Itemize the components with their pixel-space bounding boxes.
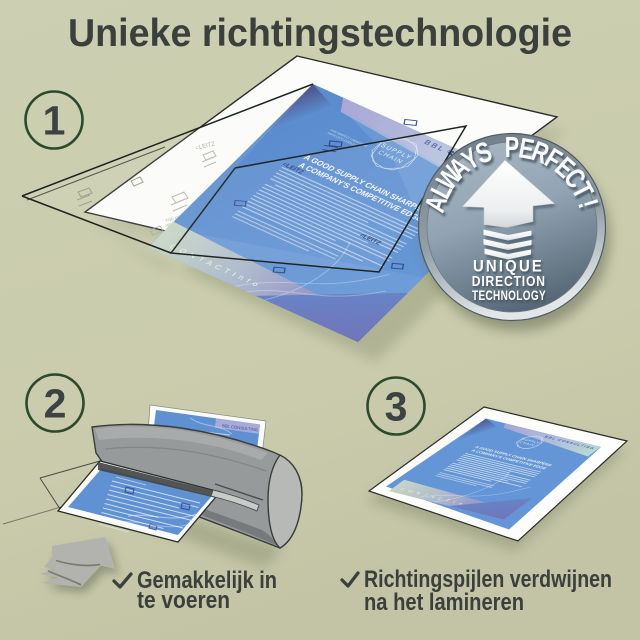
svg-text:2: 2 — [44, 381, 67, 427]
svg-text:te voeren: te voeren — [137, 587, 230, 614]
svg-text:1: 1 — [43, 98, 66, 144]
svg-text:na het lamineren: na het lamineren — [364, 589, 524, 616]
svg-text:3: 3 — [385, 384, 408, 430]
svg-text:Unieke richtingstechnologie: Unieke richtingstechnologie — [68, 12, 572, 55]
svg-text:UNIQUE: UNIQUE — [473, 257, 544, 276]
svg-text:TECHNOLOGY: TECHNOLOGY — [472, 287, 546, 303]
